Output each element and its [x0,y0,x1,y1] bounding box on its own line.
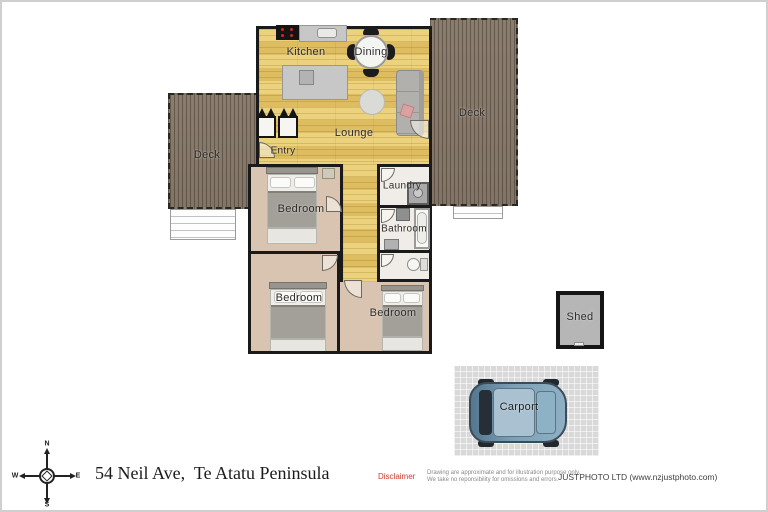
compass-w-label: W [12,473,19,480]
closet-door-mark [258,108,266,116]
shed-label: Shed [567,311,594,323]
shed-door-notch [574,342,584,346]
laundry-label: Laundry [383,181,421,192]
dining-label: Dining [355,46,388,58]
dining-chair [363,27,379,35]
bed-foot [383,336,422,350]
entry-label: Entry [271,146,296,157]
bathroom-label: Bathroom [381,224,427,235]
bedroom-front-label: Bedroom [278,203,325,215]
closet-door-mark [280,108,288,116]
entry-closet [278,116,298,138]
deck-left-steps [170,209,236,240]
kitchen-sink [317,28,337,38]
address-title: 54 Neil Ave, Te Atatu Peninsula [95,463,330,484]
car-windshield [479,390,492,435]
stove-burner [281,28,284,31]
disclaimer-line-2: We take no reponsibility for omissions a… [427,477,558,484]
bed-headboard [269,282,327,289]
bed-headboard [266,167,318,174]
closet-door-mark [267,108,275,116]
photographer-credit: JUSTPHOTO LTD (www.nzjustphoto.com) [558,472,717,482]
deck-right-step [453,206,503,219]
deck-left-label: Deck [194,149,220,161]
kitchen-island [282,65,348,100]
disclaimer-label: Disclaimer [378,472,415,481]
toilet-bowl [407,258,420,271]
compass-e-label: E [76,473,81,480]
deck-right-label: Deck [459,107,485,119]
closet-door-mark [289,108,297,116]
floorplan-page: Kitchen Dining Lounge Entry Deck Deck La… [0,0,768,512]
bedroom-mid-label: Bedroom [276,292,323,304]
compass-arrow-north [44,448,50,454]
lounge-label: Lounge [335,127,374,139]
stove [276,25,300,40]
bed-pillow [403,293,420,303]
compass-n-label: N [44,441,49,448]
toilet-tank [420,258,428,271]
bathroom-sink [384,239,399,250]
entry-closet [257,116,276,138]
bedroom-back-label: Bedroom [370,307,417,319]
bed-pillow [294,177,315,188]
bed-pillow [270,177,291,188]
stove-burner [290,28,293,31]
compass-arrow-west [19,473,25,479]
stove-burner [290,34,293,37]
bed-foot [268,227,316,242]
island-stool [299,70,314,85]
car-rear-window [536,391,556,434]
bedside-table [322,168,335,179]
hallway [340,164,380,282]
stove-burner [281,34,284,37]
bed-pillow [384,293,401,303]
compass-s-label: S [45,502,50,509]
lounge-rug [359,89,385,115]
kitchen-label: Kitchen [287,46,326,58]
carport-label: Carport [500,401,539,413]
bed-foot [271,338,325,351]
bathroom-vanity [396,208,410,221]
bed-blanket [271,305,325,338]
